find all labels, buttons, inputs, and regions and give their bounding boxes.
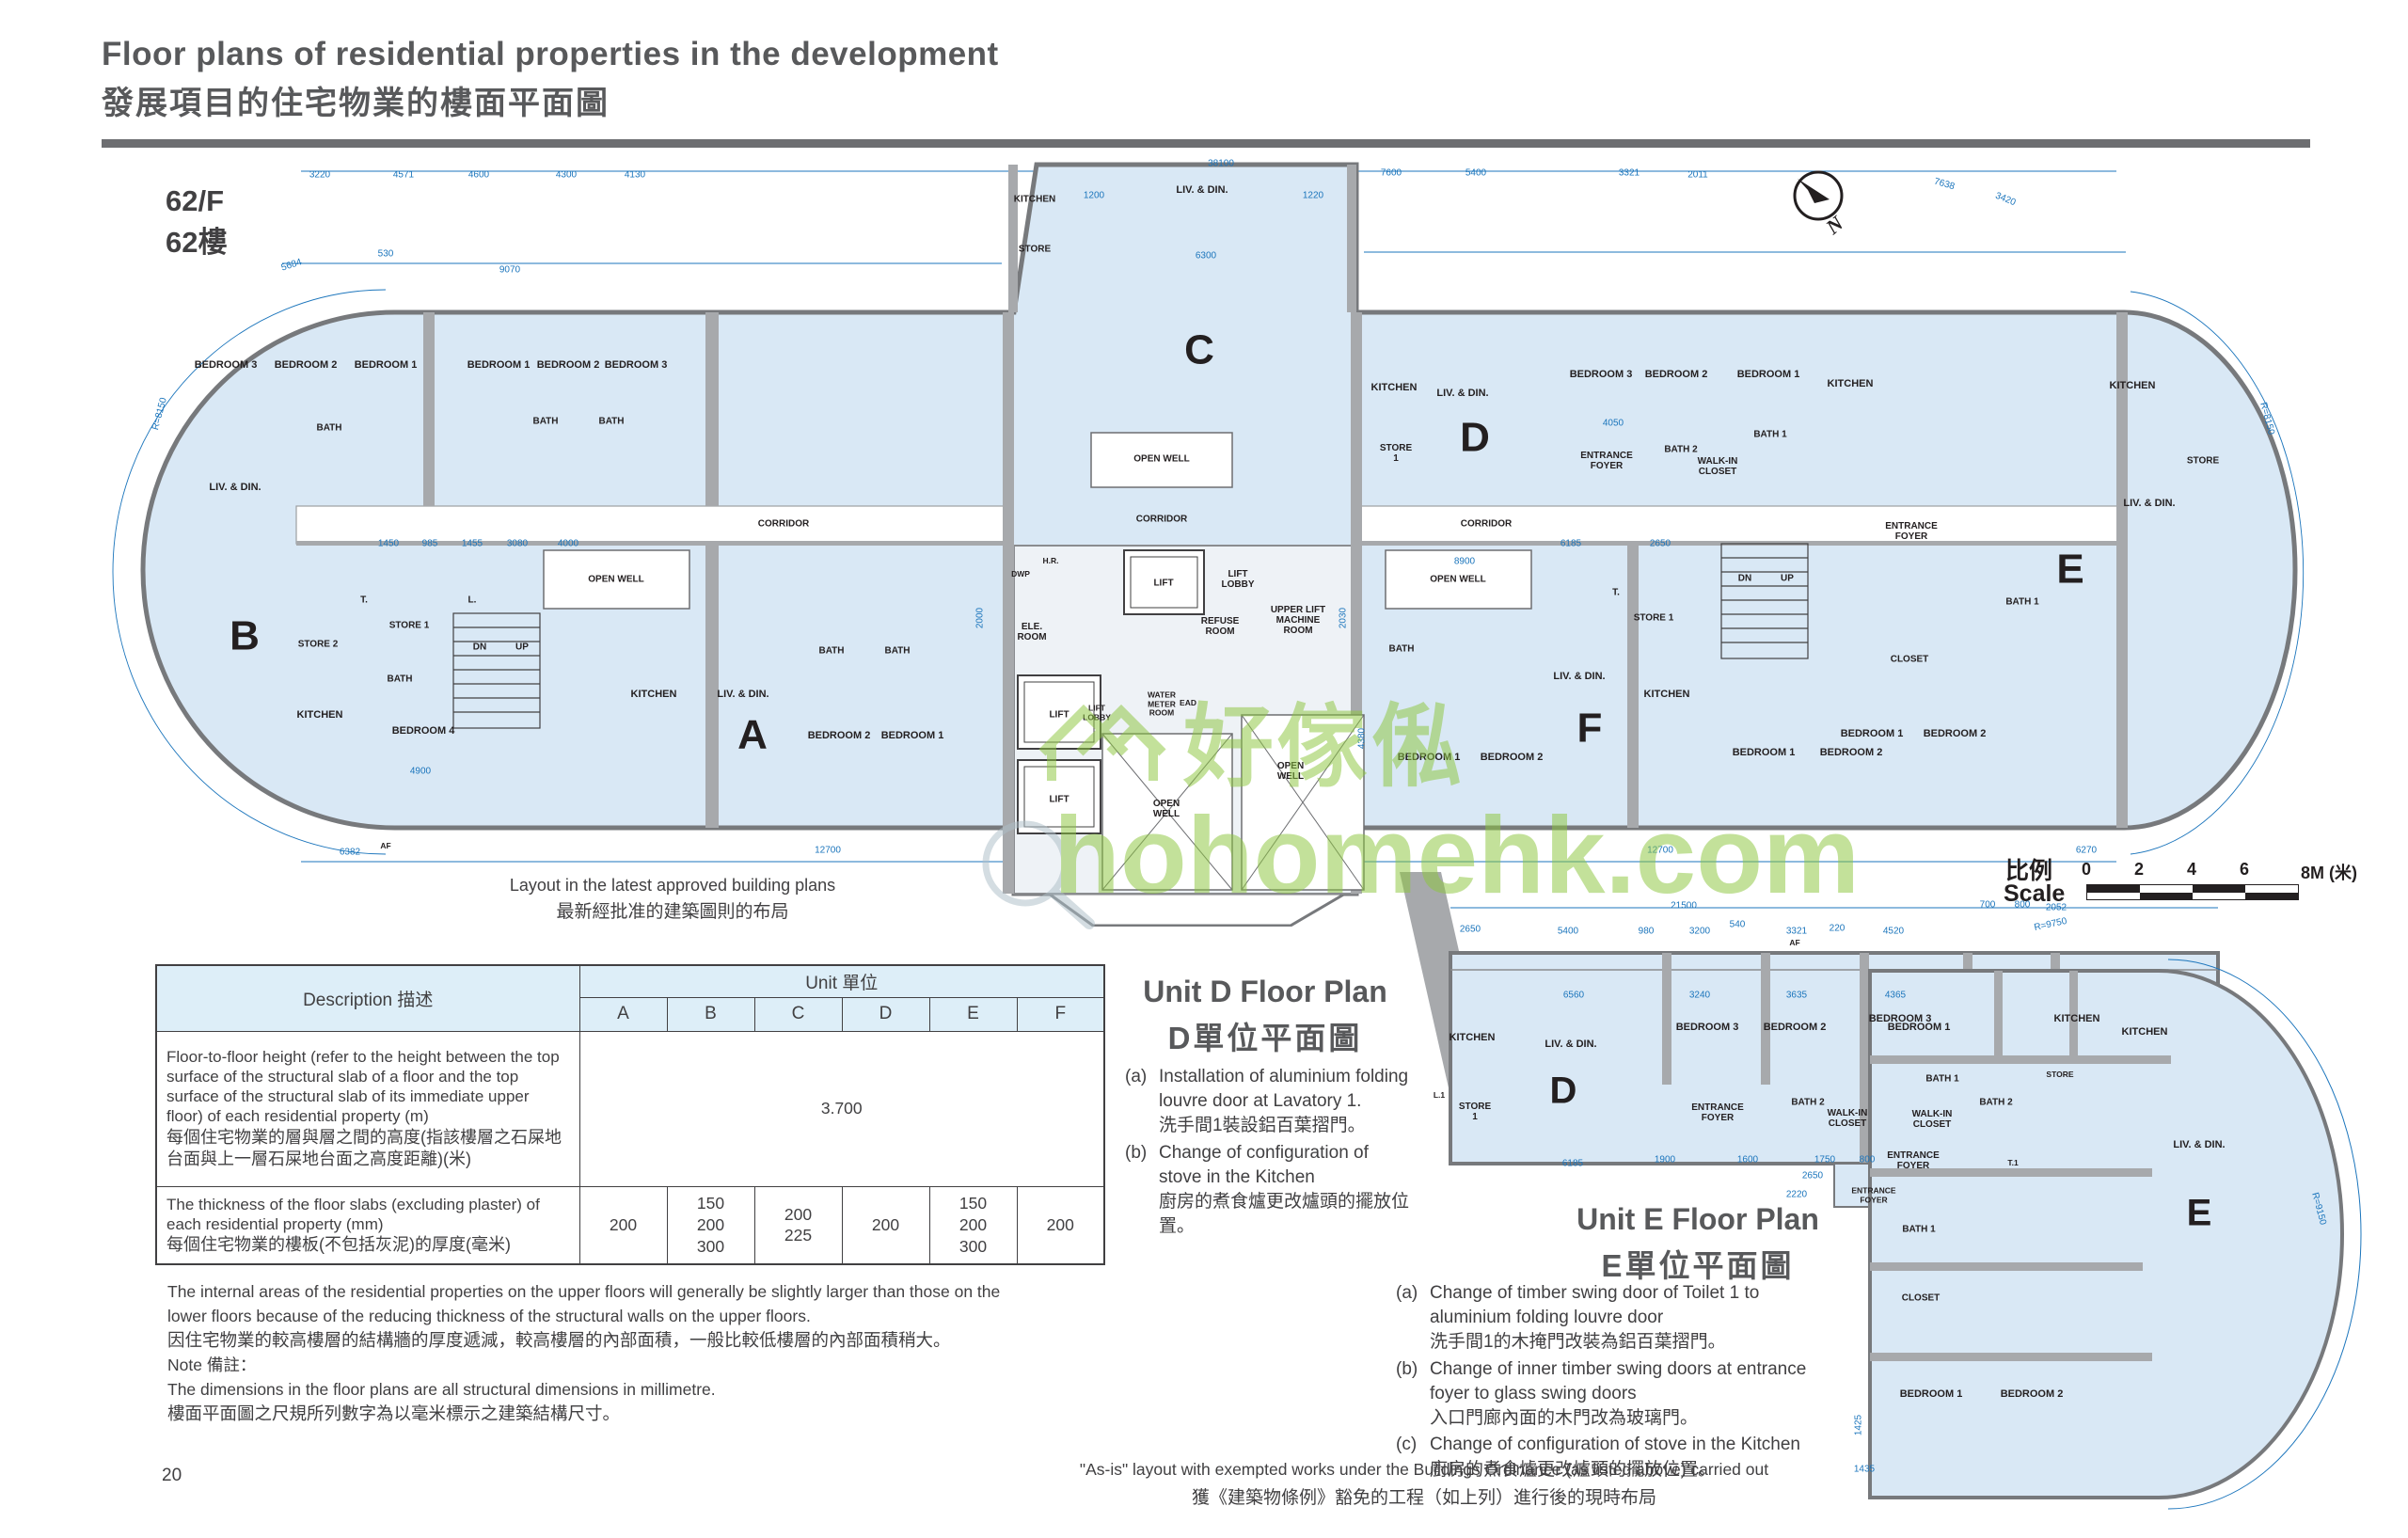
- note-line: The internal areas of the residential pr…: [167, 1279, 1117, 1304]
- room-label: BEDROOM 2: [1924, 728, 1987, 739]
- dimension-label: 2052: [2046, 902, 2067, 912]
- dimension-label: 5400: [1558, 926, 1578, 936]
- dimension-label: 38100: [1208, 158, 1234, 168]
- dimension-label: 4130: [625, 169, 645, 180]
- dimension-label: 1455: [462, 538, 483, 548]
- room-label: C: [1184, 326, 1214, 373]
- room-label: KITCHEN: [1450, 1032, 1496, 1043]
- room-label: BEDROOM 1: [1900, 1388, 1963, 1400]
- dimension-label: 2000: [974, 608, 985, 628]
- room-label: L.: [468, 595, 477, 605]
- room-label: KITCHEN: [1828, 378, 1874, 389]
- note-zh: 洗手間1裝設鋁百葉摺門。: [1159, 1116, 1366, 1135]
- dimension-label: 4300: [556, 169, 577, 180]
- room-label: A: [737, 711, 768, 757]
- unit-e-title-zh: E單位平面圖: [1543, 1241, 1853, 1286]
- table-row-height-value: 3.700: [579, 1031, 1104, 1186]
- room-label: REFUSE ROOM: [1201, 616, 1240, 637]
- footer-line-zh: 獲《建築物條例》豁免的工程（如上列）進行後的現時布局: [995, 1483, 1853, 1509]
- unit-e-notes: (a) Change of timber swing door of Toile…: [1396, 1281, 1830, 1484]
- room-label: BEDROOM 3: [1676, 1022, 1739, 1033]
- room-label: LIV. & DIN.: [2123, 498, 2175, 509]
- dimension-label: 1750: [1814, 1154, 1835, 1165]
- unit-d-note-b: (b) Change of configuration of stove in …: [1125, 1141, 1415, 1240]
- room-label: LIV. & DIN.: [1553, 671, 1605, 682]
- dimension-label: 1435: [1854, 1464, 1875, 1474]
- dimension-label: 6185: [1562, 1158, 1583, 1168]
- room-label: D: [1460, 414, 1490, 460]
- room-label: DWP: [1011, 570, 1030, 579]
- room-label: T.: [360, 595, 368, 605]
- room-label: STORE: [2187, 455, 2219, 466]
- room-label: D: [1550, 1070, 1577, 1113]
- row-desc-en: The thickness of the floor slabs (exclud…: [166, 1195, 570, 1235]
- room-label: BATH: [818, 645, 844, 656]
- room-label: BEDROOM 2: [1820, 747, 1883, 758]
- room-label: LIV. & DIN.: [717, 689, 768, 700]
- room-label: BATH: [884, 645, 910, 656]
- room-label: KITCHEN: [2054, 1013, 2100, 1024]
- unit-d-note-a: (a) Installation of aluminium folding lo…: [1125, 1065, 1415, 1139]
- table-column-c: C: [754, 997, 842, 1031]
- room-label: LIV. & DIN.: [1545, 1039, 1596, 1050]
- room-label: BEDROOM 2: [1764, 1022, 1827, 1033]
- room-label: DN: [473, 642, 486, 652]
- slab-value-d: 200: [842, 1186, 929, 1264]
- unit-e-note-a: (a) Change of timber swing door of Toile…: [1396, 1281, 1830, 1356]
- room-label: BATH 1: [1753, 429, 1786, 439]
- note-label: Note 備註：: [167, 1353, 1117, 1377]
- room-label: LIV. & DIN.: [2173, 1139, 2225, 1150]
- room-label: KITCHEN: [1014, 194, 1055, 204]
- room-label: BATH 2: [1979, 1097, 2012, 1107]
- note-line-zh: 樓面平面圖之尺規所列數字為以毫米標示之建築結構尺寸。: [167, 1402, 1117, 1426]
- note-body: Change of timber swing door of Toilet 1 …: [1430, 1281, 1830, 1356]
- dimension-label: 4600: [468, 169, 489, 180]
- dimension-label: 4900: [410, 766, 431, 776]
- room-label: BEDROOM 1: [1398, 752, 1461, 763]
- table-column-d: D: [842, 997, 929, 1031]
- room-label: KITCHEN: [1644, 689, 1690, 700]
- room-label: BATH 1: [1925, 1073, 1958, 1084]
- table-column-b: B: [667, 997, 754, 1031]
- room-label: AF: [1789, 939, 1799, 948]
- dimension-label: R=8150: [150, 396, 169, 431]
- room-label: LIFT: [1049, 709, 1069, 720]
- note-en: Change of configuration of stove in the …: [1159, 1143, 1369, 1187]
- room-label: LIFT LOBBY: [1083, 704, 1111, 721]
- room-label: UPPER LIFT MACHINE ROOM: [1271, 605, 1325, 637]
- dimension-label: 6560: [1563, 990, 1584, 1000]
- room-label: L.1: [1434, 1091, 1445, 1101]
- dimension-label: 4000: [558, 538, 578, 548]
- dimension-label: 4365: [1885, 990, 1906, 1000]
- room-label: BATH: [316, 422, 341, 433]
- title-divider: [102, 139, 2310, 148]
- room-label: WALK-IN CLOSET: [1912, 1109, 1953, 1130]
- room-label: STORE: [1019, 244, 1051, 254]
- room-label: LIFT LOBBY: [1222, 569, 1255, 590]
- room-label: F: [1577, 705, 1603, 751]
- room-label: LIV. & DIN.: [1436, 388, 1488, 399]
- room-label: LIV. & DIN.: [1176, 184, 1228, 196]
- room-label: CORRIDOR: [1136, 514, 1187, 524]
- unit-e-title-en: Unit E Floor Plan: [1543, 1202, 1853, 1237]
- dimension-label: 6270: [2076, 845, 2097, 855]
- table-column-f: F: [1017, 997, 1104, 1031]
- room-label: BEDROOM 2: [275, 359, 338, 371]
- room-label: KITCHEN: [2122, 1026, 2168, 1038]
- dimension-label: 540: [1730, 919, 1746, 929]
- room-label: T.: [1612, 587, 1620, 597]
- room-label: BEDROOM 4: [392, 725, 455, 737]
- room-label: CORRIDOR: [1461, 518, 1512, 529]
- dimension-label: 3200: [1689, 926, 1710, 936]
- note-en: Change of configuration of stove in the …: [1430, 1435, 1800, 1454]
- room-label: OPEN WELL: [1133, 453, 1189, 464]
- room-label: B: [230, 612, 260, 658]
- dimension-label: 5684: [280, 257, 304, 274]
- room-label: BEDROOM 2: [808, 730, 871, 741]
- room-label: LIFT: [1153, 578, 1173, 588]
- table-row-height-desc: Floor-to-floor height (refer to the heig…: [156, 1031, 579, 1186]
- north-arrow-icon: N: [1782, 162, 1872, 251]
- note-en: Change of timber swing door of Toilet 1 …: [1430, 1283, 1759, 1327]
- dimension-label: 3240: [1689, 990, 1710, 1000]
- room-label: KITCHEN: [2110, 380, 2156, 391]
- dimension-label: 1900: [1655, 1154, 1675, 1165]
- room-label: WALK-IN CLOSET: [1828, 1108, 1868, 1129]
- dimension-label: 980: [1639, 926, 1655, 936]
- note-zh: 洗手間1的木掩門改裝為鋁百葉摺門。: [1430, 1332, 1726, 1352]
- room-label: OPEN WELL: [588, 574, 643, 584]
- room-label: STORE 2: [298, 639, 339, 649]
- dimension-label: 1450: [378, 538, 399, 548]
- plan-caption: Layout in the latest approved building p…: [470, 876, 875, 923]
- dimension-label: 12700: [815, 845, 841, 855]
- dimension-label: 2011: [1687, 169, 1708, 180]
- room-label: BEDROOM 1: [467, 359, 531, 371]
- dimension-label: 530: [378, 248, 394, 259]
- room-label: BEDROOM 2: [2001, 1388, 2064, 1400]
- room-label: BATH: [598, 416, 624, 426]
- note-id: (a): [1396, 1281, 1430, 1356]
- scale-tick: 6: [2240, 860, 2249, 880]
- dimension-label: 220: [1830, 923, 1846, 933]
- slab-value-a: 200: [579, 1186, 667, 1264]
- room-label: BEDROOM 3: [1570, 369, 1633, 380]
- row-desc-en: Floor-to-floor height (refer to the heig…: [166, 1047, 570, 1127]
- dimension-label: 6382: [340, 847, 360, 857]
- dimension-label: 2650: [1650, 538, 1671, 548]
- dimension-label: 4050: [1603, 418, 1624, 428]
- dimension-label: 800: [1860, 1154, 1876, 1165]
- room-label: BATH: [1388, 643, 1414, 654]
- room-label: STORE 1: [1634, 612, 1674, 623]
- slab-value-b: 150 200 300: [667, 1186, 754, 1264]
- dimension-label: R=8150: [2257, 401, 2276, 436]
- unit-d-title-zh: D單位平面圖: [1116, 1013, 1415, 1058]
- room-label: BEDROOM 1: [355, 359, 418, 371]
- room-label: WALK-IN CLOSET: [1698, 456, 1738, 477]
- unit-e-note-b: (b) Change of inner timber swing doors a…: [1396, 1357, 1830, 1432]
- page-title-zh: 發展項目的住宅物業的樓面平面圖: [102, 77, 610, 123]
- room-label: AF: [380, 842, 390, 851]
- room-label: BEDROOM 1: [881, 730, 944, 741]
- dimension-label: 985: [422, 538, 438, 548]
- room-label: BATH 1: [2005, 596, 2038, 607]
- dimension-label: 3635: [1786, 990, 1807, 1000]
- north-arrow: N: [1782, 162, 1872, 251]
- room-label: STORE 1: [1380, 443, 1412, 464]
- note-id: (b): [1125, 1141, 1159, 1240]
- table-column-e: E: [929, 997, 1017, 1031]
- room-label: LIV. & DIN.: [209, 482, 261, 493]
- room-label: BATH 1: [1902, 1224, 1935, 1234]
- svg-text:N: N: [1820, 211, 1848, 240]
- page-title: Floor plans of residential properties in…: [102, 36, 999, 73]
- table-row-slab-desc: The thickness of the floor slabs (exclud…: [156, 1186, 579, 1264]
- dimension-label: 12700: [1647, 845, 1673, 855]
- note-body: Change of configuration of stove in the …: [1159, 1141, 1415, 1240]
- dimension-label: 4380: [1356, 728, 1367, 749]
- room-label: KITCHEN: [1371, 382, 1418, 393]
- unit-d-notes: (a) Installation of aluminium folding lo…: [1125, 1065, 1415, 1242]
- note-line: The dimensions in the floor plans are al…: [167, 1377, 1117, 1402]
- dimension-label: 5400: [1465, 167, 1486, 178]
- dimension-label: 2030: [1338, 608, 1348, 628]
- room-label: OPEN WELL: [1277, 761, 1304, 782]
- dimension-label: R=9150: [2309, 1191, 2328, 1226]
- page-number: 20: [162, 1466, 182, 1486]
- dimension-label: 6185: [1560, 538, 1581, 548]
- slab-value-e: 150 200 300: [929, 1186, 1017, 1264]
- note-line: lower floors because of the reducing thi…: [167, 1304, 1117, 1328]
- note-en: Change of inner timber swing doors at en…: [1430, 1359, 1806, 1403]
- room-label: UP: [515, 642, 529, 652]
- dimension-label: 1220: [1303, 190, 1323, 200]
- dimension-label: 7600: [1381, 167, 1402, 178]
- footer-line-en: "As-is" layout with exempted works under…: [995, 1460, 1853, 1480]
- dimension-label: 7638: [1933, 177, 1956, 193]
- scale-tick: 8M (米): [2301, 860, 2357, 884]
- dimension-label: 700: [1980, 899, 1996, 910]
- room-label: DN: [1738, 573, 1751, 583]
- room-label: BEDROOM 2: [1645, 369, 1708, 380]
- row-desc-zh: 每個住宅物業的樓板(不包括灰泥)的厚度(毫米): [166, 1234, 570, 1256]
- room-label: ENTRANCE FOYER: [1691, 1102, 1744, 1123]
- room-label: LIFT: [1049, 794, 1069, 804]
- room-label: STORE: [2046, 1070, 2073, 1080]
- dimension-label: 2650: [1802, 1170, 1823, 1181]
- dimension-label: 3321: [1786, 926, 1807, 936]
- room-label: E: [2187, 1193, 2212, 1235]
- table-header-unit: Unit 單位: [579, 965, 1104, 997]
- note-en: Installation of aluminium folding louvre…: [1159, 1067, 1408, 1111]
- note-zh: 廚房的煮食爐更改爐頭的擺放位置。: [1159, 1192, 1409, 1236]
- unit-e-heading: Unit E Floor Plan E單位平面圖: [1543, 1202, 1853, 1286]
- table-header-description: Description 描述: [156, 965, 579, 1031]
- dimension-label: 6300: [1196, 250, 1216, 261]
- room-label: UP: [1781, 573, 1794, 583]
- room-label: ELE. ROOM: [1017, 622, 1046, 642]
- room-label: ENTRANCE FOYER: [1580, 451, 1633, 471]
- note-body: Change of inner timber swing doors at en…: [1430, 1357, 1830, 1432]
- room-label: BEDROOM 1: [1737, 369, 1800, 380]
- room-label: BEDROOM 3: [195, 359, 258, 371]
- dimension-label: 3321: [1619, 167, 1640, 178]
- dimension-label: 3220: [309, 169, 330, 180]
- dimension-label: 3420: [1994, 191, 2018, 209]
- slab-value-f: 200: [1017, 1186, 1104, 1264]
- unit-spec-table: Description 描述 Unit 單位 A B C D E F Floor…: [155, 964, 1105, 1265]
- room-label: WATER METER ROOM: [1148, 691, 1176, 719]
- unit-d-title-en: Unit D Floor Plan: [1116, 975, 1415, 1009]
- room-label: BATH 2: [1791, 1097, 1824, 1107]
- room-label: BEDROOM 2: [537, 359, 600, 371]
- room-label: BEDROOM 1: [1733, 747, 1796, 758]
- room-label: OPEN WELL: [1153, 799, 1180, 819]
- dimension-label: 8900: [1454, 556, 1475, 566]
- dimension-label: 2650: [1460, 924, 1481, 934]
- unit-d-heading: Unit D Floor Plan D單位平面圖: [1116, 975, 1415, 1058]
- room-label: BEDROOM 2: [1481, 752, 1544, 763]
- room-label: CORRIDOR: [758, 518, 809, 529]
- room-label: STORE 1: [1459, 1102, 1491, 1122]
- room-label: ENTRANCE FOYER: [1887, 1150, 1940, 1171]
- dimension-label: 1600: [1737, 1154, 1758, 1165]
- note-body: Installation of aluminium folding louvre…: [1159, 1065, 1415, 1139]
- plan-caption-zh: 最新經批准的建築圖則的布局: [470, 897, 875, 923]
- room-label: BEDROOM 3: [605, 359, 668, 371]
- dimension-label: 2220: [1786, 1189, 1807, 1199]
- room-label: BATH: [387, 674, 412, 684]
- room-label: BATH 2: [1664, 444, 1697, 454]
- room-label: KITCHEN: [297, 709, 343, 721]
- room-label: E: [2056, 546, 2083, 592]
- dimension-label: 21500: [1671, 900, 1697, 911]
- dimension-label: 4520: [1883, 926, 1904, 936]
- room-label: BEDROOM 1: [1841, 728, 1904, 739]
- room-label: T.1: [2007, 1159, 2018, 1168]
- room-label: CLOSET: [1891, 654, 1929, 664]
- notes-block: The internal areas of the residential pr…: [167, 1279, 1117, 1426]
- room-label: ENTRANCE FOYER: [1851, 1186, 1895, 1204]
- dimension-label: 3080: [507, 538, 528, 548]
- room-label: KITCHEN: [631, 689, 677, 700]
- room-label: EAD: [1180, 699, 1196, 708]
- main-plan-dimensions: 3810012006300122056845309070322045714600…: [103, 151, 2314, 927]
- room-label: BEDROOM 3: [1869, 1013, 1932, 1024]
- room-label: STORE 1: [389, 620, 430, 630]
- row-desc-zh: 每個住宅物業的層與層之間的高度(指該樓層之石屎地台面與上一層石屎地台面之高度距離…: [166, 1127, 570, 1171]
- room-label: BATH: [532, 416, 558, 426]
- note-id: (a): [1125, 1065, 1159, 1139]
- dimension-label: 4571: [393, 169, 414, 180]
- slab-value-c: 200 225: [754, 1186, 842, 1264]
- plan-caption-en: Layout in the latest approved building p…: [470, 876, 875, 896]
- note-id: (b): [1396, 1357, 1430, 1432]
- room-label: OPEN WELL: [1430, 574, 1485, 584]
- footer-note: "As-is" layout with exempted works under…: [995, 1460, 1853, 1509]
- table-column-a: A: [579, 997, 667, 1031]
- room-label: ENTRANCE FOYER: [1885, 521, 1938, 542]
- dimension-label: 1200: [1084, 190, 1104, 200]
- dimension-label: 1425: [1853, 1415, 1863, 1435]
- note-zh: 入口門廊內面的木門改為玻璃門。: [1430, 1408, 1698, 1428]
- brochure-page: Floor plans of residential properties in…: [0, 0, 2408, 1538]
- note-line-zh: 因住宅物業的較高樓層的結構牆的厚度遞減，較高樓層的內部面積，一般比較低樓層的內部…: [167, 1328, 1117, 1353]
- room-label: CLOSET: [1902, 1292, 1941, 1303]
- dimension-label: 9070: [499, 264, 520, 275]
- room-label: H.R.: [1043, 557, 1059, 566]
- dimension-label: 800: [2015, 899, 2031, 910]
